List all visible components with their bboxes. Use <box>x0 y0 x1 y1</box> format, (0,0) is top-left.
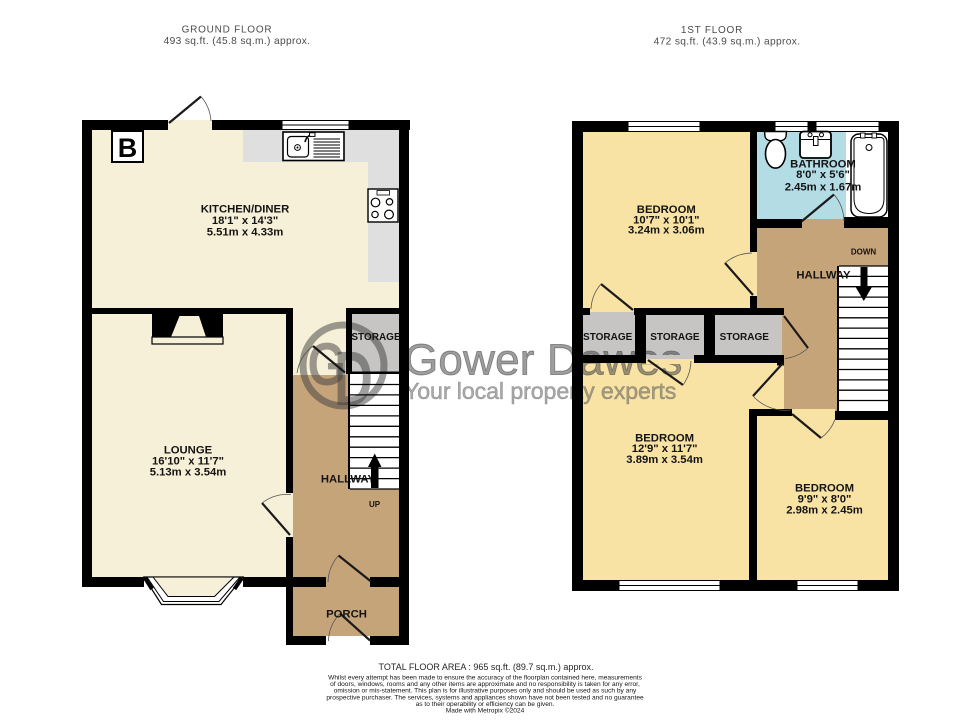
svg-text:STORAGE: STORAGE <box>583 332 633 343</box>
svg-text:UP: UP <box>369 500 381 509</box>
svg-text:5.51m x 4.33m: 5.51m x 4.33m <box>207 227 284 239</box>
svg-text:5.13m x 3.54m: 5.13m x 3.54m <box>150 467 227 479</box>
svg-text:493 sq.ft. (45.8 sq.m.) approx: 493 sq.ft. (45.8 sq.m.) approx. <box>164 36 311 47</box>
svg-text:DOWN: DOWN <box>851 248 877 257</box>
svg-text:8'0" x 5'6": 8'0" x 5'6" <box>796 169 850 181</box>
svg-text:B: B <box>118 133 138 163</box>
svg-text:3.24m x 3.06m: 3.24m x 3.06m <box>628 225 705 237</box>
svg-text:2.98m x 2.45m: 2.98m x 2.45m <box>786 505 863 517</box>
svg-text:2.45m x 1.67m: 2.45m x 1.67m <box>785 182 862 194</box>
svg-text:18'1" x 14'3": 18'1" x 14'3" <box>212 215 278 227</box>
svg-text:HALLWAY: HALLWAY <box>321 474 376 486</box>
svg-text:3.89m x 3.54m: 3.89m x 3.54m <box>626 454 703 466</box>
svg-text:Made with Metropix ©2024: Made with Metropix ©2024 <box>446 707 525 715</box>
svg-text:D: D <box>334 337 373 423</box>
svg-text:472 sq.ft. (43.9 sq.m.) approx: 472 sq.ft. (43.9 sq.m.) approx. <box>654 37 801 48</box>
svg-text:STORAGE: STORAGE <box>351 332 401 343</box>
svg-text:GROUND FLOOR: GROUND FLOOR <box>182 24 273 35</box>
svg-text:STORAGE: STORAGE <box>650 332 700 343</box>
svg-text:HALLWAY: HALLWAY <box>796 270 851 282</box>
svg-text:Your local property experts: Your local property experts <box>404 378 676 404</box>
svg-text:KITCHEN/DINER: KITCHEN/DINER <box>201 203 290 215</box>
svg-text:STORAGE: STORAGE <box>720 332 770 343</box>
svg-text:1ST FLOOR: 1ST FLOOR <box>681 25 743 36</box>
svg-text:TOTAL FLOOR AREA : 965 sq.ft.: TOTAL FLOOR AREA : 965 sq.ft. (89.7 sq.m… <box>379 662 594 672</box>
svg-text:PORCH: PORCH <box>326 609 367 621</box>
